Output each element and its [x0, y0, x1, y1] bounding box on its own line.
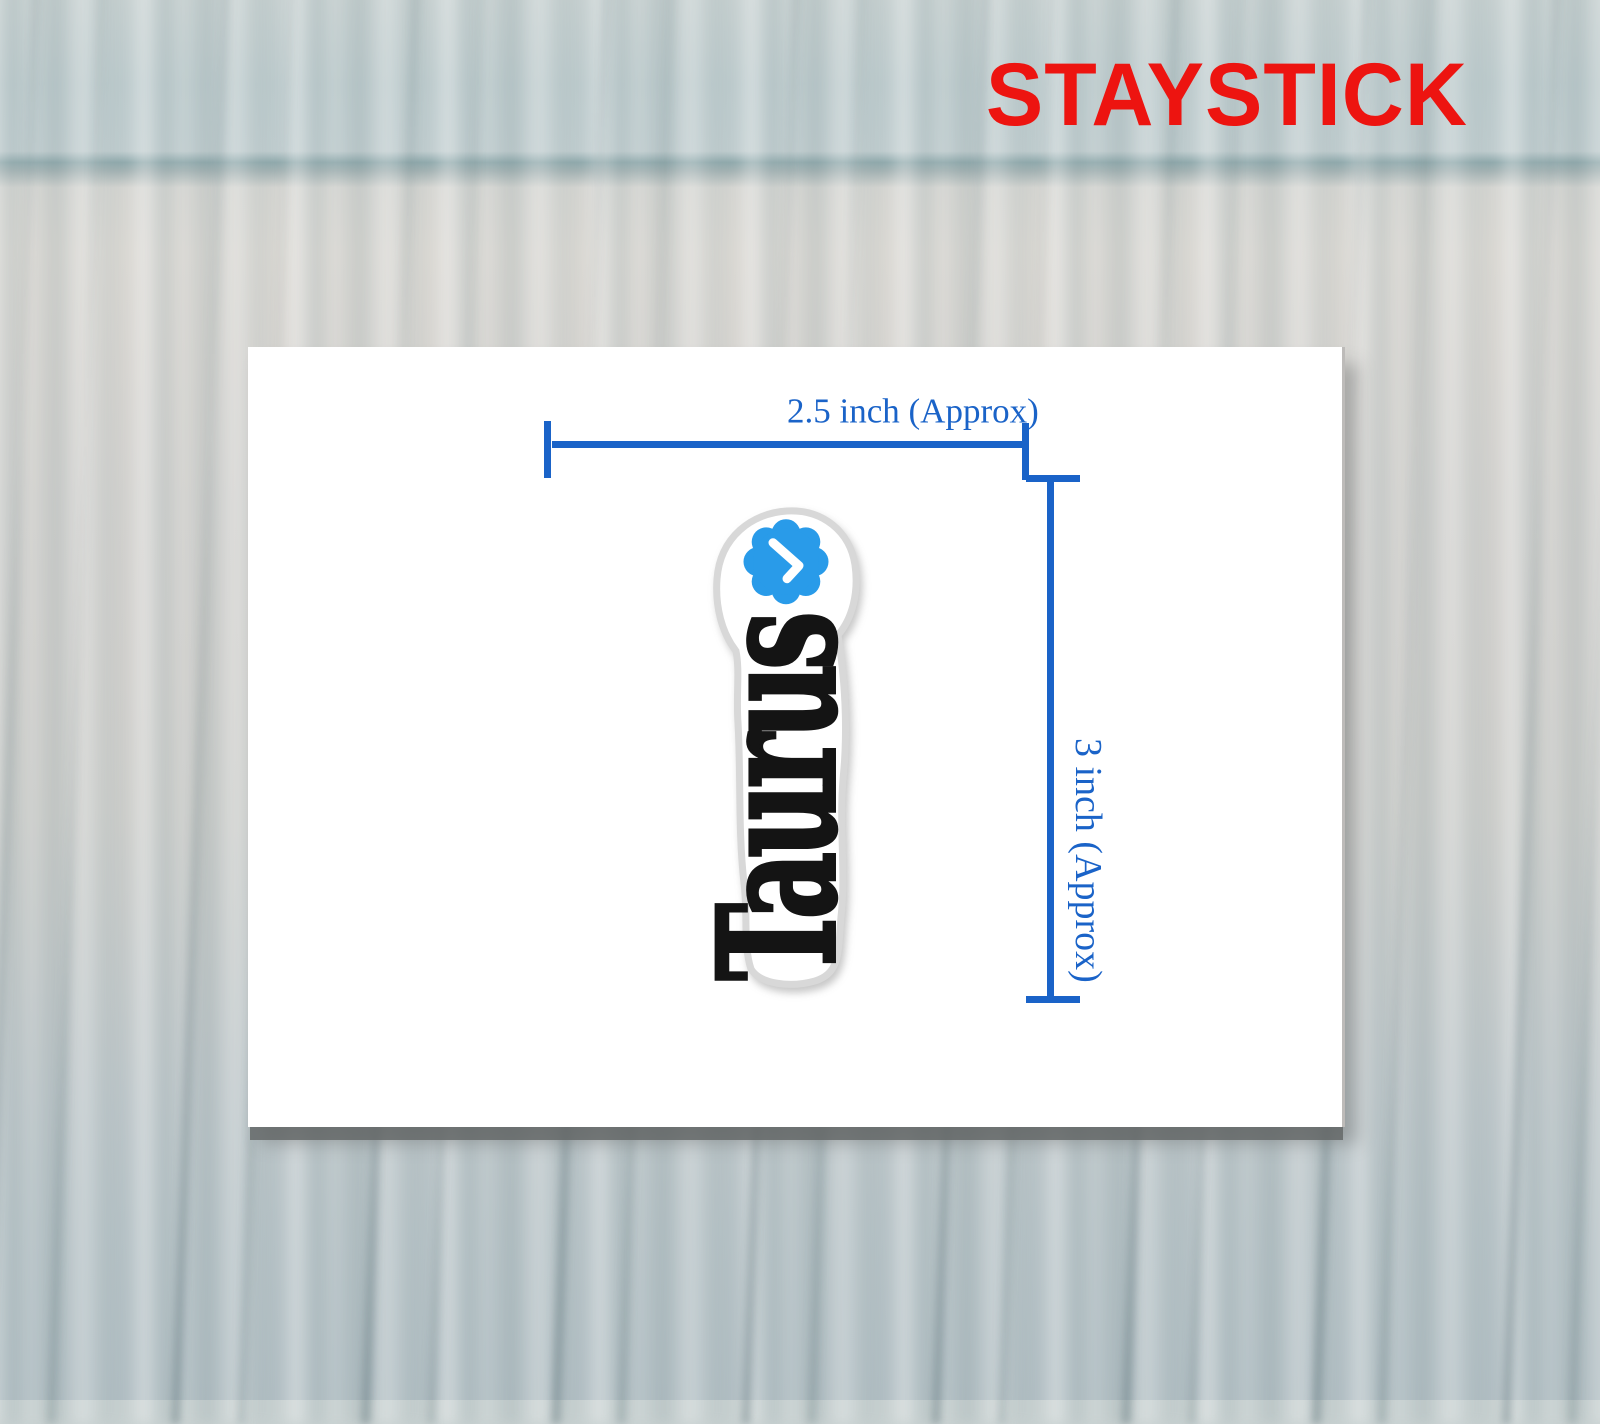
height-measurement-line [1047, 480, 1054, 996]
sticker-artwork: Taurus [729, 515, 843, 980]
sticker-text: Taurus [698, 617, 875, 980]
width-measurement-left-tick [544, 421, 551, 478]
width-measurement-line [552, 441, 1022, 448]
sticker-card: 2.5 inch (Approx) 3 inch (Approx) Taurus [248, 347, 1345, 1127]
height-measurement-bottom-tick [1026, 996, 1080, 1003]
width-measurement-right-tick [1022, 423, 1029, 480]
brand-logo: STAYSTICK [986, 50, 1468, 139]
taurus-sticker: Taurus [710, 505, 862, 990]
verified-badge-icon [740, 515, 832, 607]
